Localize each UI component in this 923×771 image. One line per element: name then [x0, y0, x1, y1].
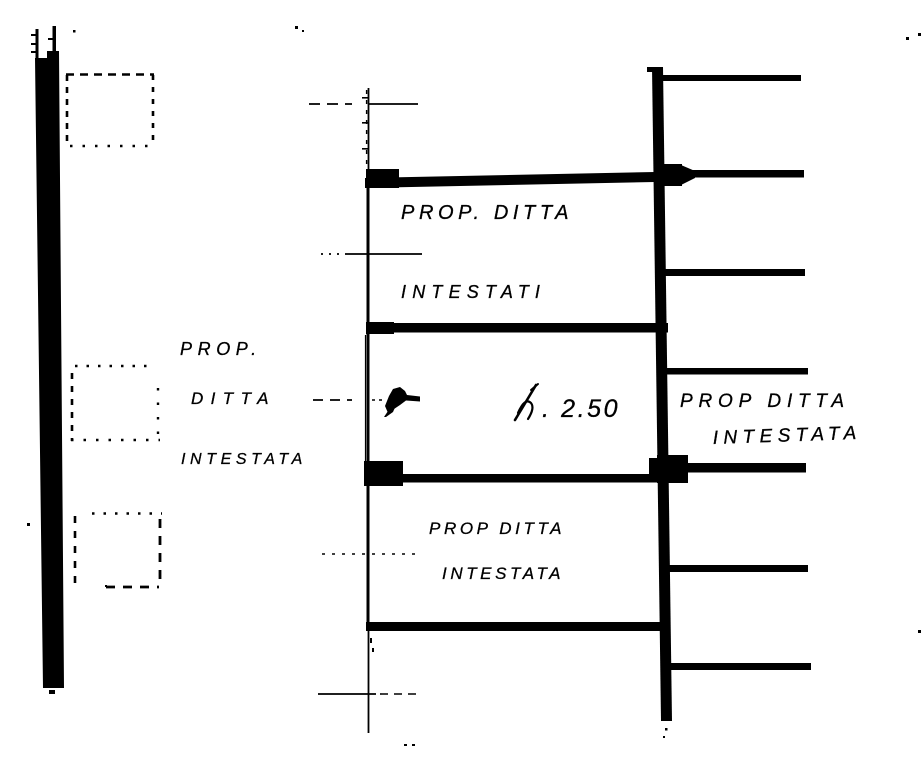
svg-text:INTESTATA: INTESTATA — [181, 451, 307, 468]
svg-text:DITTA: DITTA — [191, 389, 276, 408]
svg-text:PROP.: PROP. — [180, 339, 262, 359]
svg-text:. 2.50: . 2.50 — [542, 395, 620, 423]
svg-text:PROP. DITTA: PROP. DITTA — [401, 202, 573, 224]
svg-text:INTESTATA: INTESTATA — [712, 423, 862, 449]
svg-text:INTESTATA: INTESTATA — [442, 564, 564, 583]
svg-text:INTESTATI: INTESTATI — [401, 282, 546, 302]
svg-text:PROP DITTA: PROP DITTA — [429, 519, 565, 538]
svg-text:PROP DITTA: PROP DITTA — [680, 391, 850, 412]
